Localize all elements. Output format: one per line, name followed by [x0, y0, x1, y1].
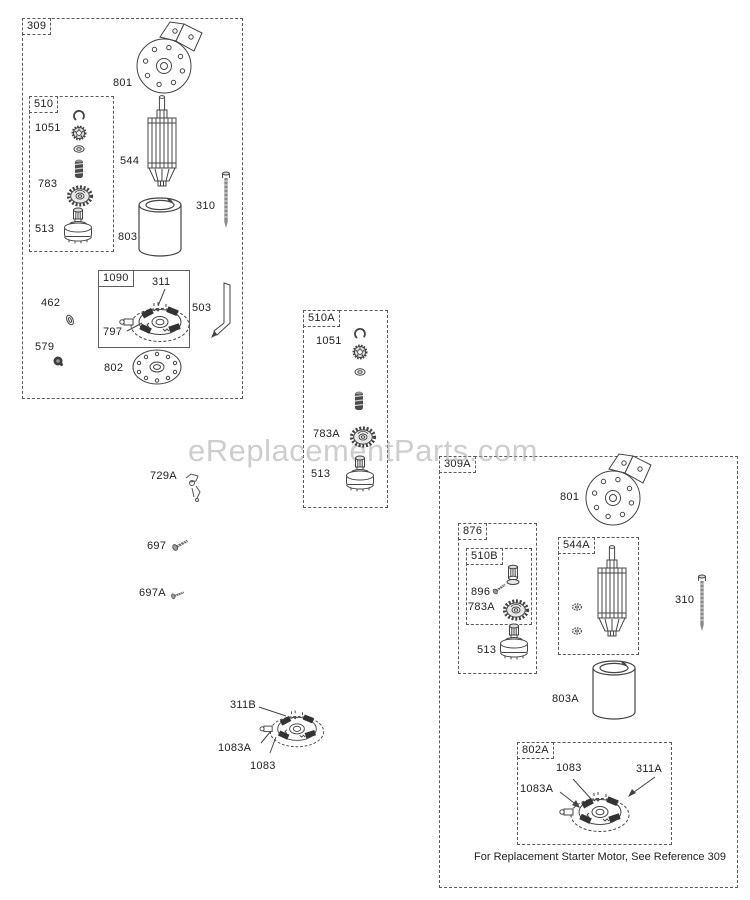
part-label-1083A-loose: 1083A: [218, 742, 251, 754]
part-label-462: 462: [41, 297, 60, 309]
drawing-screw-697: [172, 538, 189, 551]
part-label-697A: 697A: [139, 587, 166, 599]
part-label-783A-right: 783A: [468, 601, 495, 613]
part-label-803: 803: [118, 231, 137, 243]
box-label-510: 510: [29, 96, 58, 113]
box-label-510A: 510A: [303, 310, 340, 327]
part-label-1083: 1083: [556, 762, 582, 774]
box-label-309: 309: [22, 18, 51, 35]
part-label-513B: 513: [477, 644, 496, 656]
part-label-311B: 311B: [230, 699, 256, 711]
part-label-802: 802: [104, 362, 123, 374]
box-label-544A: 544A: [558, 537, 595, 554]
part-label-1051: 1051: [35, 122, 61, 134]
box-label-510B: 510B: [466, 548, 503, 565]
drawing-clip-729A: [186, 474, 200, 502]
part-label-311A: 311A: [636, 763, 662, 775]
part-label-503: 503: [192, 302, 211, 314]
part-label-783A: 783A: [313, 428, 340, 440]
part-label-1051A: 1051: [316, 335, 342, 347]
ref-box-544A: 544A: [558, 537, 639, 655]
leader-lines-311B: [259, 707, 286, 753]
part-label-797: 797: [103, 326, 122, 338]
box-label-802A: 802A: [517, 742, 554, 759]
part-label-579: 579: [35, 341, 54, 353]
part-label-729A: 729A: [150, 470, 177, 482]
part-label-513A: 513: [311, 468, 330, 480]
drawing-screw-697A: [171, 590, 185, 599]
part-label-544: 544: [120, 155, 139, 167]
part-label-803A: 803A: [552, 693, 579, 705]
box-label-876: 876: [458, 523, 487, 540]
watermark-text: eReplacementParts.com: [188, 433, 538, 469]
part-label-513: 513: [35, 223, 54, 235]
part-label-697: 697: [147, 540, 166, 552]
part-label-311: 311: [152, 276, 170, 288]
part-label-1083-loose: 1083: [250, 760, 276, 772]
replacement-note: For Replacement Starter Motor, See Refer…: [460, 851, 740, 863]
part-label-310A: 310: [675, 594, 694, 606]
part-label-801: 801: [113, 77, 132, 89]
drawing-brush-card-311B: [260, 710, 324, 746]
part-label-310: 310: [196, 200, 215, 212]
parts-diagram-page: 309 510 1090 510A 309A 876 510B 544A 802…: [0, 0, 750, 900]
part-label-896: 896: [471, 586, 490, 598]
part-label-783: 783: [38, 178, 57, 190]
part-label-801A: 801: [560, 491, 579, 503]
box-label-1090: 1090: [98, 270, 134, 287]
part-label-1083A: 1083A: [520, 783, 553, 795]
